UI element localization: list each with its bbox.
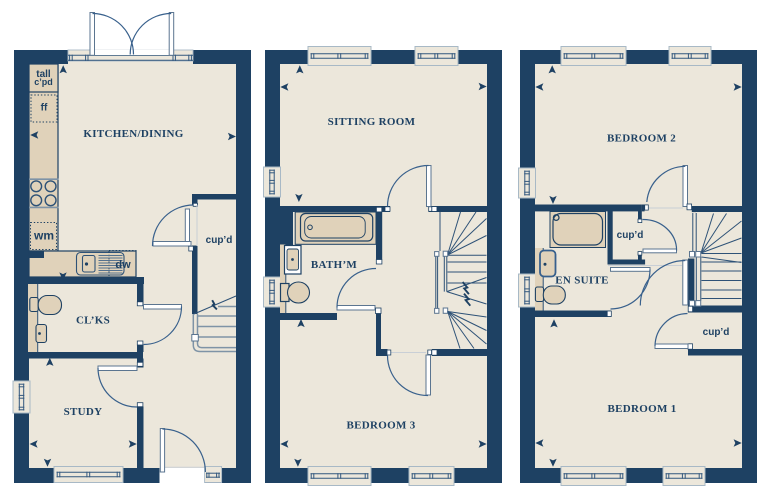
svg-text:BEDROOM 3: BEDROOM 3 — [346, 420, 415, 432]
svg-text:BEDROOM 2: BEDROOM 2 — [607, 133, 676, 145]
svg-text:BEDROOM 1: BEDROOM 1 — [607, 403, 676, 415]
svg-text:cup’d: cup’d — [617, 230, 644, 241]
svg-text:wm: wm — [33, 229, 54, 243]
svg-text:CL’KS: CL’KS — [76, 315, 110, 327]
svg-text:KITCHEN/DINING: KITCHEN/DINING — [83, 128, 183, 140]
svg-text:dw: dw — [115, 259, 131, 271]
svg-text:cup’d: cup’d — [703, 327, 730, 338]
svg-text:ff: ff — [41, 103, 48, 114]
svg-text:EN SUITE: EN SUITE — [555, 275, 608, 287]
svg-text:STUDY: STUDY — [64, 406, 103, 418]
svg-text:cup’d: cup’d — [206, 235, 233, 246]
svg-text:SITTING ROOM: SITTING ROOM — [328, 116, 416, 128]
svg-text:BATH’M: BATH’M — [311, 259, 358, 271]
svg-text:c’pd: c’pd — [34, 77, 53, 87]
